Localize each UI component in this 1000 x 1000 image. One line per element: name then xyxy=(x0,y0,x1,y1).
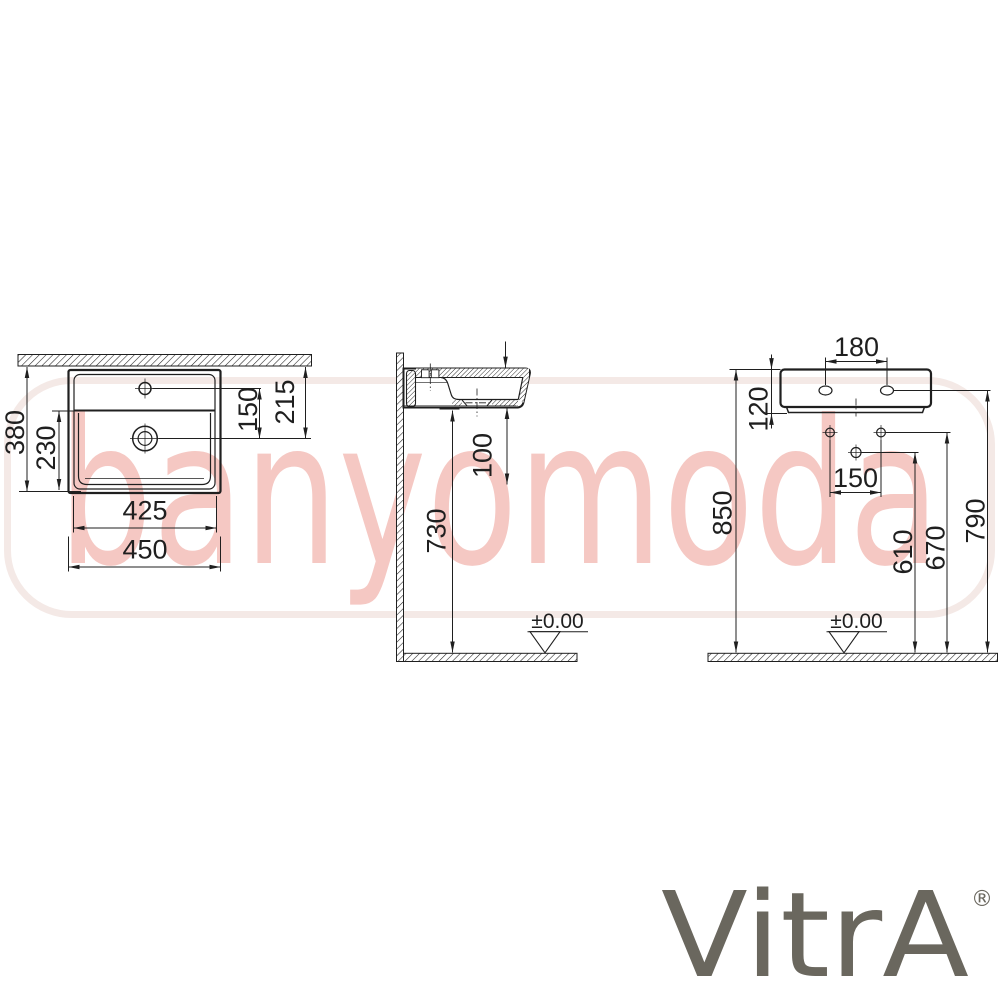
dim-text-850: 850 xyxy=(708,490,738,535)
back-wall-section xyxy=(407,371,416,407)
vitra-logo: VitrA xyxy=(661,866,969,1000)
brand-logo: VitrA ® xyxy=(661,866,993,1000)
tap-hole-section xyxy=(422,370,430,378)
dim-text-230: 230 xyxy=(31,425,61,470)
dim-text-100: 100 xyxy=(468,433,498,478)
floor-section xyxy=(404,653,578,661)
dim-text-150: 150 xyxy=(233,387,263,432)
bottom-section-hatch xyxy=(452,400,462,406)
dim-text-790: 790 xyxy=(961,498,991,543)
dim-text-215: 215 xyxy=(270,379,300,424)
floor-section xyxy=(708,653,998,661)
level-triangle-icon xyxy=(530,632,560,653)
dim-text-670: 670 xyxy=(921,525,951,570)
dim-text-450: 450 xyxy=(122,535,167,565)
dim-text-730: 730 xyxy=(422,508,452,553)
wall-section xyxy=(397,353,404,662)
dim-text-610: 610 xyxy=(888,529,918,574)
drawing-page: banyomoda 150 215 380 230 425 xyxy=(0,0,1000,1000)
level-triangle-icon xyxy=(829,632,859,653)
dim-text-120: 120 xyxy=(744,386,774,431)
dim-text-150: 150 xyxy=(833,463,878,493)
tap-hole-section xyxy=(431,370,439,378)
registered-trademark-icon: ® xyxy=(971,887,993,912)
bottom-section-hatch xyxy=(492,400,518,406)
countertop-section xyxy=(18,355,312,367)
floor-level-label: ±0.00 xyxy=(531,610,583,633)
dim-text-180: 180 xyxy=(834,332,879,362)
dim-text-425: 425 xyxy=(122,496,167,526)
floor-level-label: ±0.00 xyxy=(830,610,882,633)
technical-drawing: banyomoda 150 215 380 230 425 xyxy=(0,0,1000,1000)
dim-text-380: 380 xyxy=(0,410,30,455)
